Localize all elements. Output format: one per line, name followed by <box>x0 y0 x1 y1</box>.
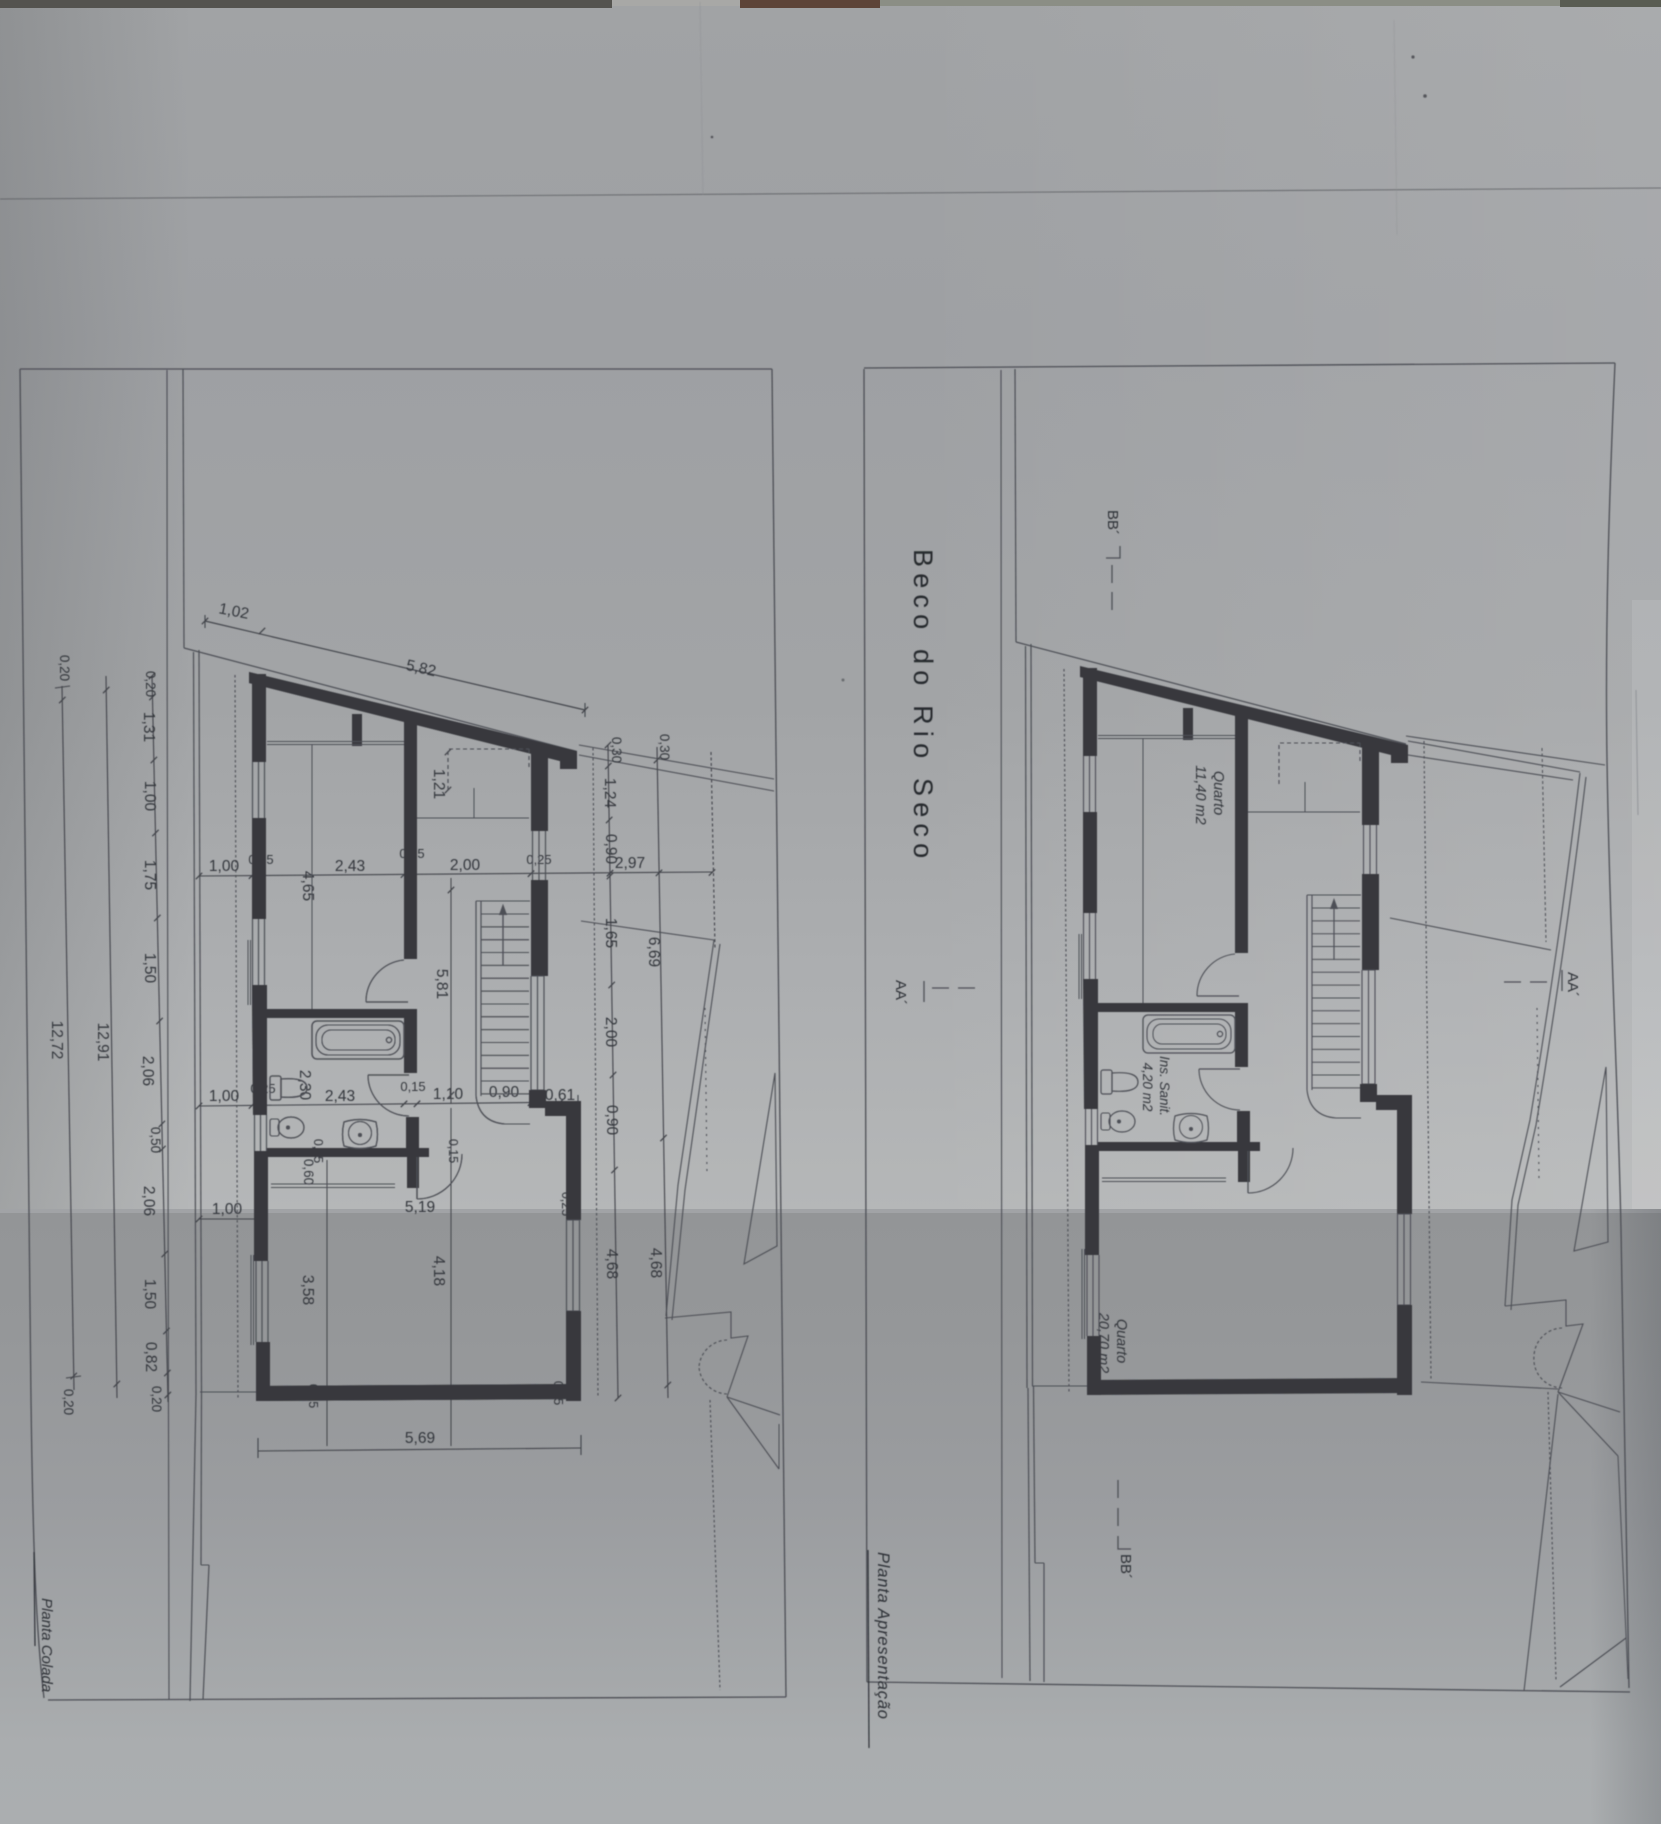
svg-text:0,30: 0,30 <box>657 734 672 760</box>
svg-text:2,06: 2,06 <box>139 1056 156 1086</box>
svg-text:4,65: 4,65 <box>299 871 316 901</box>
svg-text:4,68: 4,68 <box>603 1249 620 1279</box>
svg-text:1,10: 1,10 <box>433 1086 464 1103</box>
svg-text:2,43: 2,43 <box>335 858 365 875</box>
svg-text:5,69: 5,69 <box>405 1430 435 1447</box>
svg-text:0,90: 0,90 <box>602 834 619 865</box>
svg-text:2,00: 2,00 <box>602 1017 619 1048</box>
svg-text:3,58: 3,58 <box>299 1275 316 1305</box>
svg-text:BB´: BB´ <box>1117 1554 1134 1579</box>
svg-text:2,00: 2,00 <box>450 857 481 874</box>
svg-text:5,82: 5,82 <box>404 657 437 680</box>
svg-text:Ins. Sanit.: Ins. Sanit. <box>1157 1056 1172 1116</box>
svg-text:Quarto: Quarto <box>1113 1319 1129 1363</box>
svg-text:12,91: 12,91 <box>94 1023 111 1062</box>
svg-text:1,00: 1,00 <box>141 781 158 812</box>
svg-text:1,21: 1,21 <box>430 769 447 799</box>
svg-text:AA´: AA´ <box>892 980 909 1005</box>
svg-text:2,43: 2,43 <box>325 1088 355 1105</box>
svg-text:12,72: 12,72 <box>48 1021 65 1060</box>
svg-text:0,90: 0,90 <box>489 1084 520 1101</box>
svg-text:0,90: 0,90 <box>603 1105 620 1136</box>
svg-text:5,81: 5,81 <box>433 969 450 999</box>
svg-text:6,69: 6,69 <box>645 937 662 967</box>
svg-text:Beco do Rio Seco: Beco do Rio Seco <box>908 549 938 864</box>
svg-text:4,68: 4,68 <box>647 1248 664 1278</box>
svg-text:0,20: 0,20 <box>57 655 72 681</box>
svg-text:0,82: 0,82 <box>142 1342 159 1372</box>
svg-text:2,06: 2,06 <box>140 1186 157 1216</box>
svg-text:1,31: 1,31 <box>140 712 157 742</box>
svg-text:AA´: AA´ <box>1564 972 1581 997</box>
svg-text:Planta Apresentação: Planta Apresentação <box>874 1552 892 1720</box>
svg-text:Quarto: Quarto <box>1210 771 1226 815</box>
svg-text:1,00: 1,00 <box>209 858 240 875</box>
svg-text:1,75: 1,75 <box>141 860 158 890</box>
svg-text:1,50: 1,50 <box>141 1279 158 1310</box>
svg-text:0,30: 0,30 <box>609 737 624 763</box>
svg-text:0,20: 0,20 <box>143 671 158 697</box>
svg-text:1,65: 1,65 <box>602 918 619 948</box>
svg-text:Planta Colada: Planta Colada <box>38 1598 55 1692</box>
svg-text:1,00: 1,00 <box>209 1088 240 1105</box>
svg-text:0,20: 0,20 <box>61 1389 76 1415</box>
svg-text:BB´: BB´ <box>1104 510 1121 535</box>
svg-text:1,00: 1,00 <box>212 1201 243 1218</box>
svg-text:0,50: 0,50 <box>148 1127 163 1153</box>
svg-text:5,19: 5,19 <box>405 1199 435 1216</box>
svg-text:0,15: 0,15 <box>400 1079 425 1094</box>
svg-text:0,20: 0,20 <box>149 1386 164 1412</box>
svg-text:1,02: 1,02 <box>217 600 250 622</box>
svg-text:4,18: 4,18 <box>430 1256 447 1286</box>
svg-text:1,50: 1,50 <box>141 953 158 984</box>
svg-text:0,15: 0,15 <box>446 1139 460 1163</box>
svg-text:4,20 m2: 4,20 m2 <box>1140 1063 1155 1112</box>
svg-text:1,24: 1,24 <box>601 778 618 809</box>
svg-text:11,40 m2: 11,40 m2 <box>1192 765 1208 824</box>
